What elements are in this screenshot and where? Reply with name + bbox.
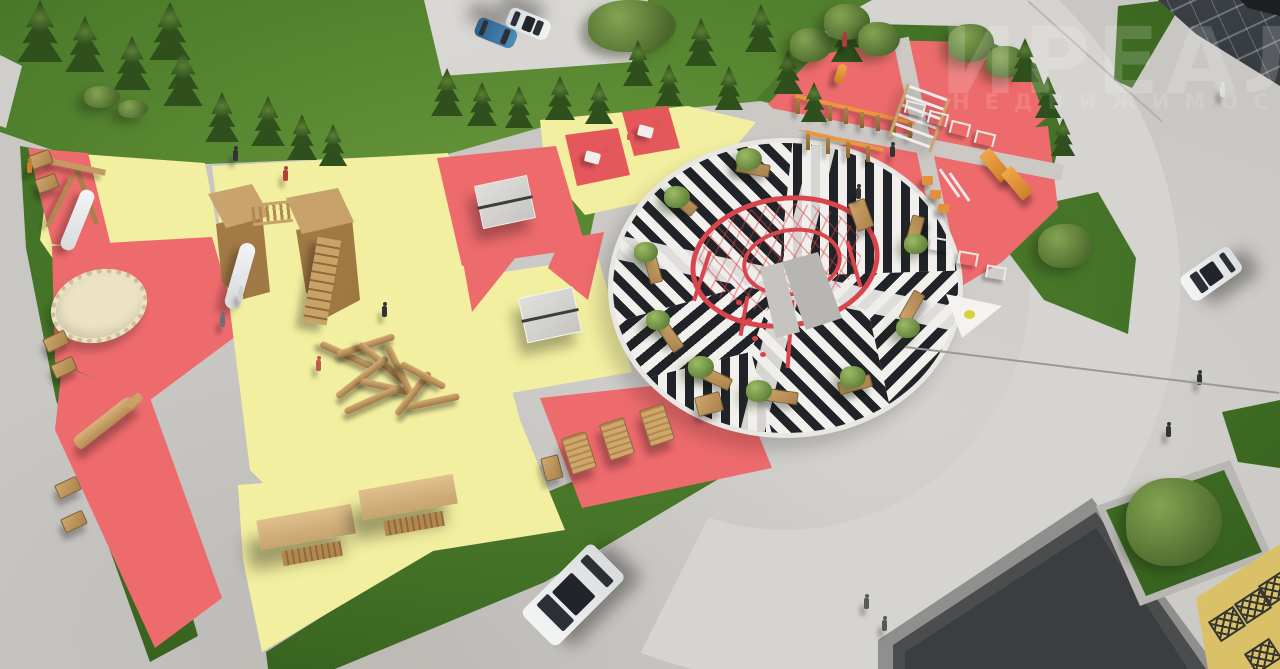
person xyxy=(864,598,869,609)
person xyxy=(283,170,288,181)
workout-post xyxy=(828,105,832,121)
person xyxy=(238,290,243,301)
shade-sail-plant xyxy=(964,310,975,319)
person xyxy=(1220,86,1225,97)
step-stool xyxy=(938,204,949,213)
person xyxy=(316,360,321,371)
step-stool xyxy=(930,190,941,199)
chess-stool xyxy=(654,120,661,126)
ping-pong-net xyxy=(477,195,533,210)
person xyxy=(382,306,387,317)
workout-post xyxy=(876,115,880,131)
balance-pod-1 xyxy=(736,300,742,305)
person xyxy=(856,188,861,199)
person xyxy=(233,150,238,161)
chess-stool xyxy=(602,147,609,153)
workout-post xyxy=(796,98,800,114)
workout-post xyxy=(846,142,850,158)
step-stool xyxy=(922,176,933,185)
park-aerial-render: ИРЕАЛ НЕДВИЖИМОСТЬ xyxy=(0,0,1280,669)
workout-post xyxy=(826,138,830,154)
chess-stool xyxy=(627,134,634,140)
person xyxy=(890,146,895,157)
person xyxy=(220,316,225,327)
workout-post xyxy=(866,146,870,162)
chess-stool xyxy=(573,160,580,166)
person xyxy=(882,620,887,631)
left-bench xyxy=(60,510,88,534)
driving-car-white-road xyxy=(1178,245,1244,304)
balance-pod-2 xyxy=(746,318,752,323)
workout-post xyxy=(844,108,848,124)
balance-pod-4 xyxy=(760,352,766,357)
rope-bridge xyxy=(251,200,293,226)
person xyxy=(842,36,847,47)
workout-post xyxy=(806,134,810,150)
person xyxy=(27,162,32,173)
workout-post xyxy=(860,112,864,128)
person xyxy=(1166,426,1171,437)
left-bench xyxy=(54,476,82,500)
ping-pong-net xyxy=(521,308,579,324)
deck-bench xyxy=(540,454,564,482)
balance-pod-3 xyxy=(752,336,758,341)
